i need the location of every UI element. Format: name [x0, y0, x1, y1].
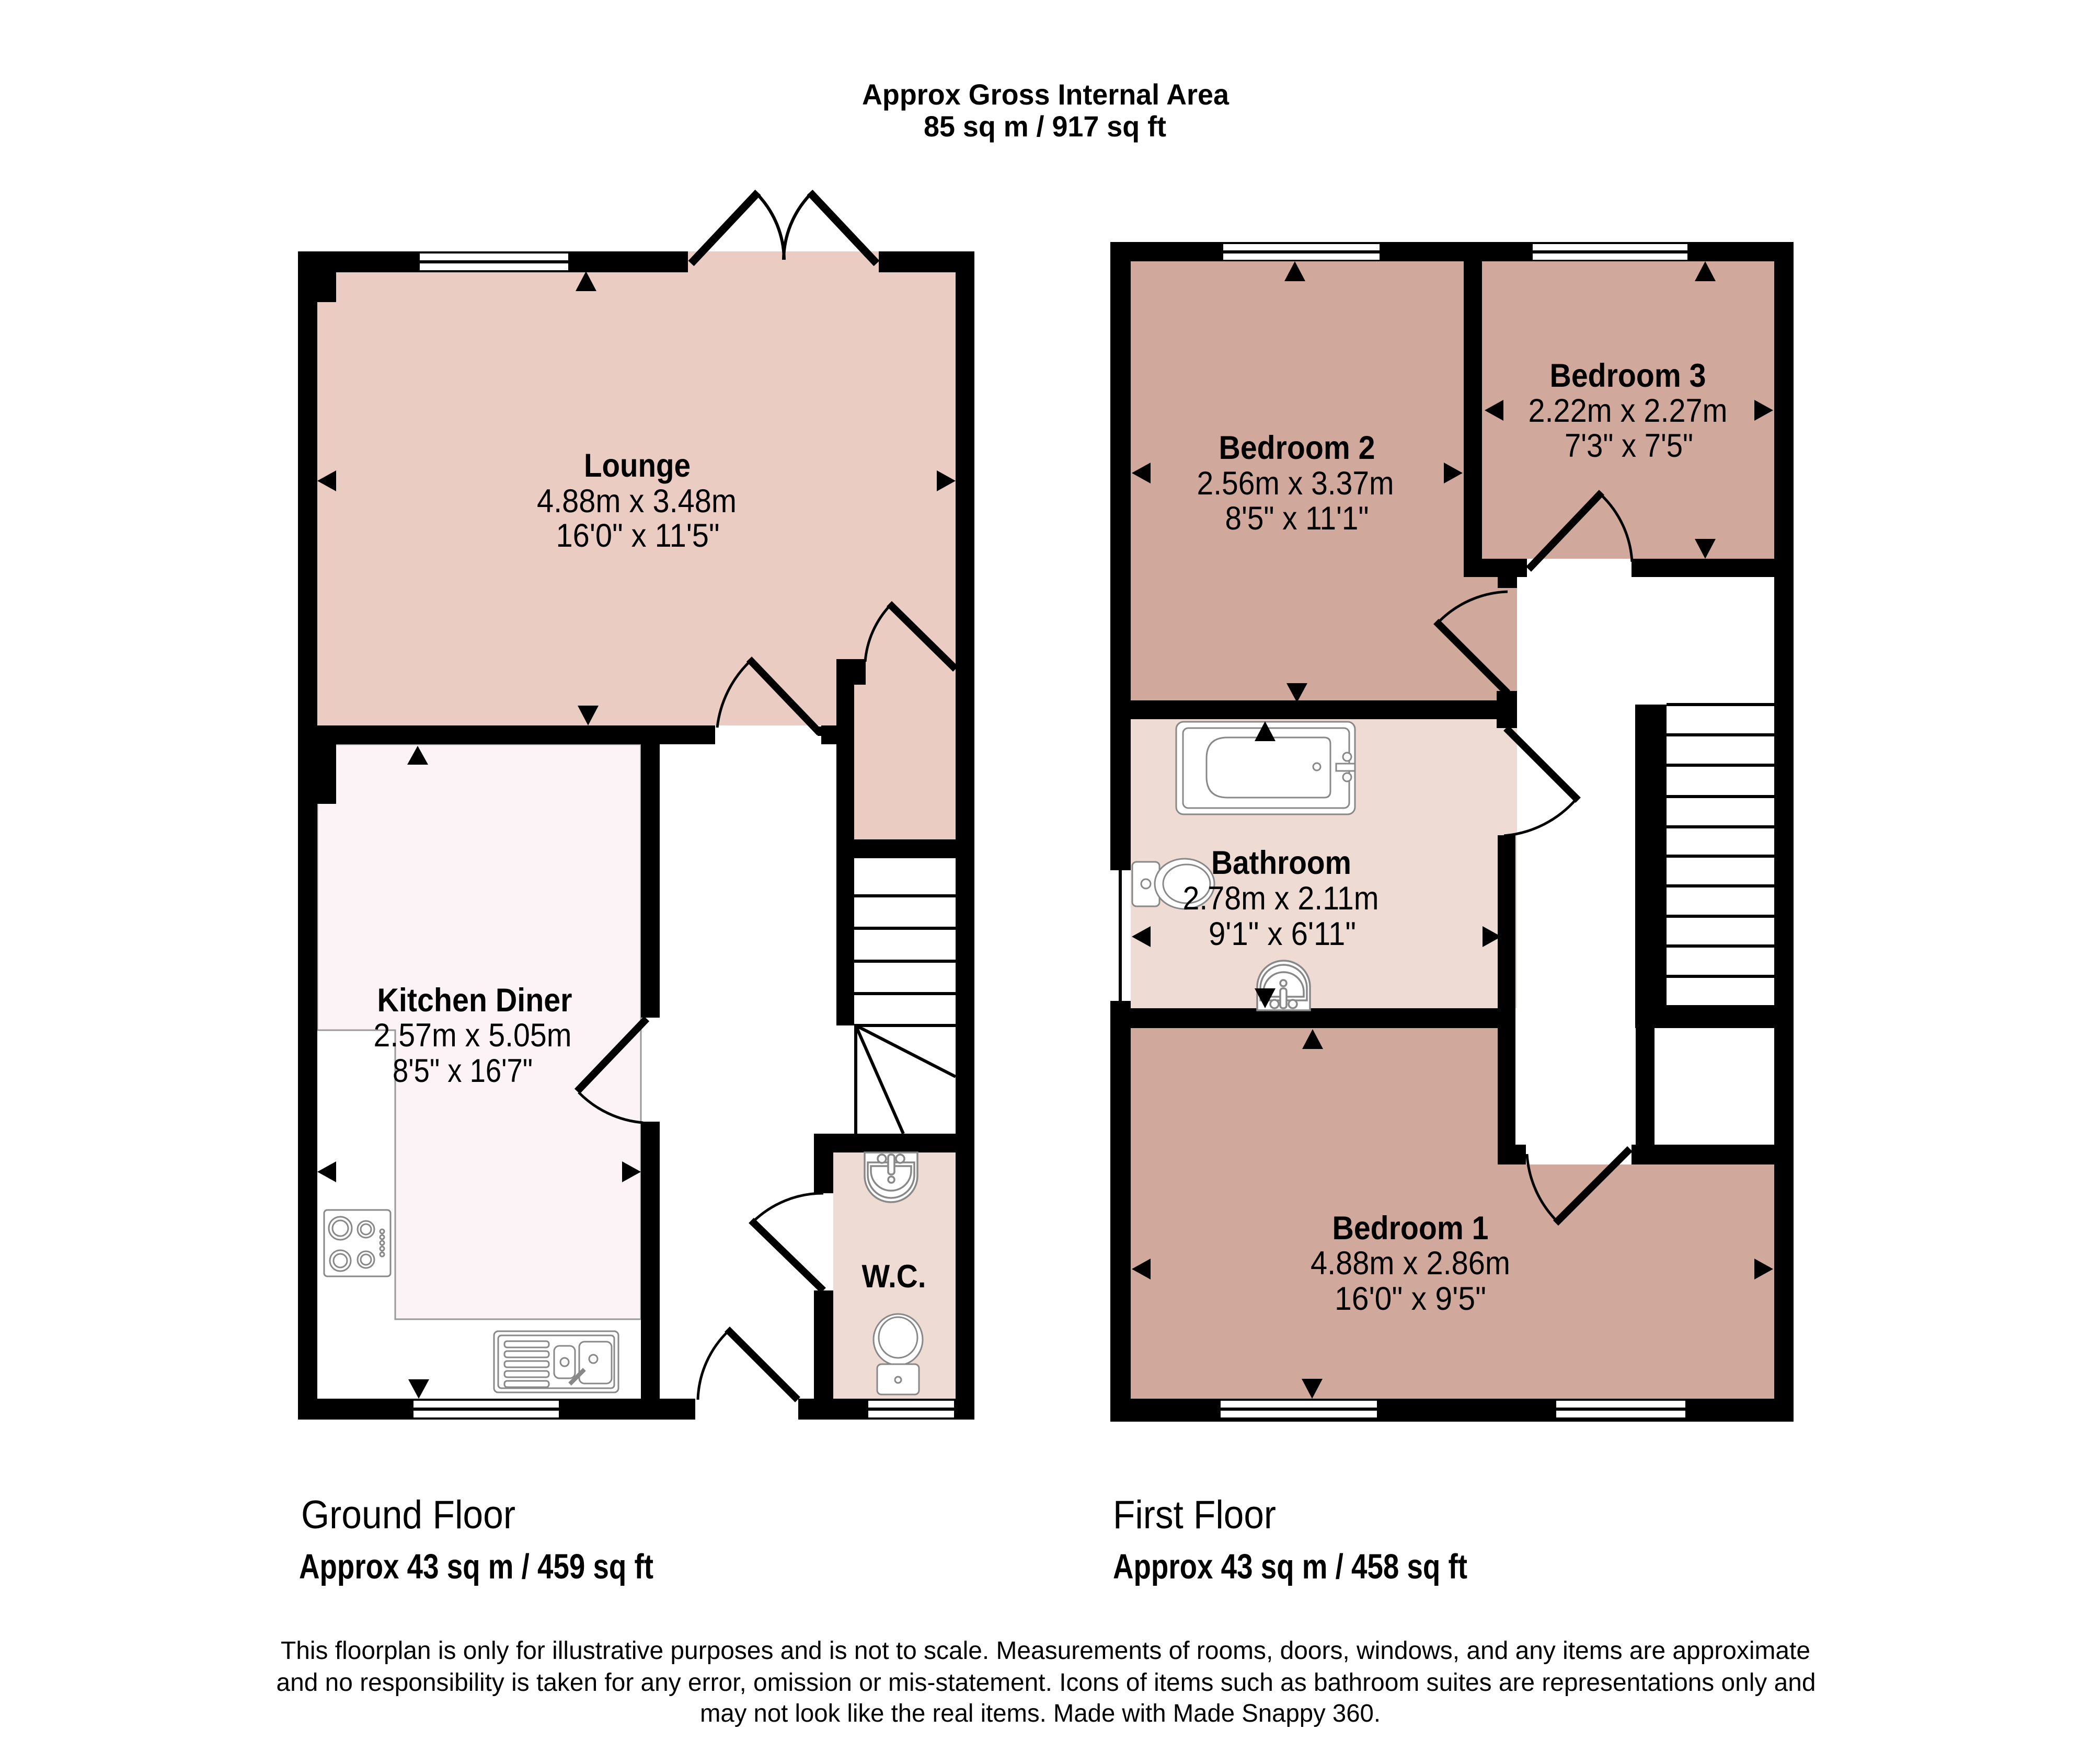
svg-text:Bedroom 2: Bedroom 2 — [1219, 430, 1375, 466]
svg-text:16'0" x 9'5": 16'0" x 9'5" — [1335, 1281, 1486, 1317]
svg-text:8'5" x 11'1": 8'5" x 11'1" — [1225, 500, 1369, 537]
svg-text:2.57m x 5.05m: 2.57m x 5.05m — [374, 1017, 572, 1054]
svg-text:4.88m x 3.48m: 4.88m x 3.48m — [537, 483, 737, 520]
svg-text:Bedroom 3: Bedroom 3 — [1550, 358, 1706, 394]
svg-text:2.22m x 2.27m: 2.22m x 2.27m — [1529, 393, 1728, 429]
svg-text:Approx 43 sq m / 459 sq ft: Approx 43 sq m / 459 sq ft — [299, 1547, 653, 1586]
svg-text:2.56m x 3.37m: 2.56m x 3.37m — [1197, 465, 1394, 502]
svg-text:Approx Gross Internal Area: Approx Gross Internal Area — [862, 78, 1230, 111]
svg-text:Bathroom: Bathroom — [1211, 845, 1351, 881]
svg-text:and no responsibility is taken: and no responsibility is taken for any e… — [277, 1669, 1816, 1697]
svg-text:Bedroom 1: Bedroom 1 — [1332, 1210, 1489, 1247]
svg-text:This floorplan is only for ill: This floorplan is only for illustrative … — [281, 1637, 1810, 1665]
svg-text:85 sq m / 917 sq ft: 85 sq m / 917 sq ft — [924, 110, 1166, 143]
svg-text:8'5" x 16'7": 8'5" x 16'7" — [393, 1053, 533, 1089]
svg-text:Lounge: Lounge — [584, 447, 691, 484]
svg-text:Kitchen Diner: Kitchen Diner — [377, 982, 572, 1019]
svg-text:Approx 43 sq m / 458 sq ft: Approx 43 sq m / 458 sq ft — [1113, 1547, 1467, 1586]
svg-text:9'1" x 6'11": 9'1" x 6'11" — [1209, 916, 1356, 952]
svg-text:Ground Floor: Ground Floor — [301, 1493, 515, 1537]
svg-text:7'3" x 7'5": 7'3" x 7'5" — [1565, 428, 1693, 464]
svg-text:4.88m x 2.86m: 4.88m x 2.86m — [1311, 1245, 1510, 1282]
svg-text:may not look like the real ite: may not look like the real items. Made w… — [700, 1700, 1381, 1727]
svg-text:First Floor: First Floor — [1113, 1493, 1276, 1537]
svg-text:16'0" x 11'5": 16'0" x 11'5" — [556, 517, 720, 554]
svg-text:W.C.: W.C. — [862, 1259, 926, 1295]
svg-text:2.78m x 2.11m: 2.78m x 2.11m — [1183, 880, 1379, 917]
